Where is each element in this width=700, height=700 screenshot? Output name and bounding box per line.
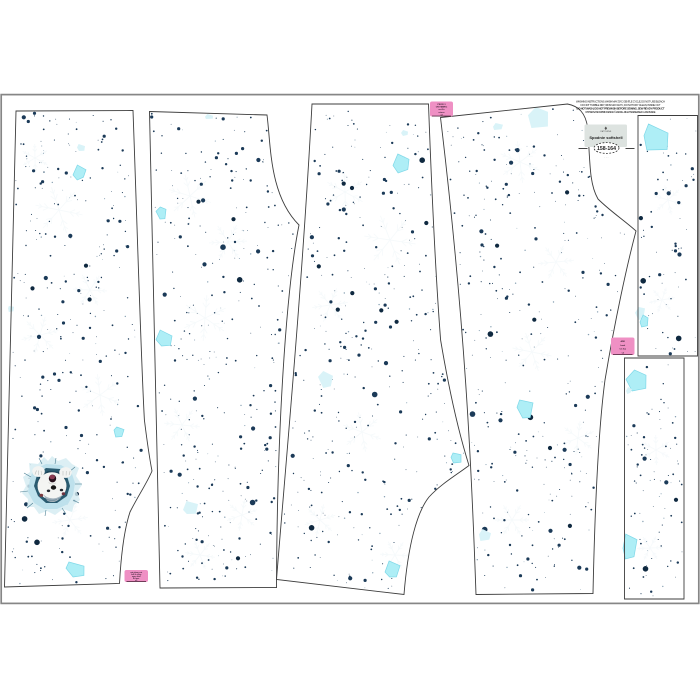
svg-text:158-164: 158-164 [597,146,616,152]
svg-text:back: back [620,345,626,347]
svg-text:cut 2x: cut 2x [438,108,445,111]
svg-text:PATTERN AND FABRIC DESIGN © 20: PATTERN AND FABRIC DESIGN © 2023 ALL RIG… [586,110,656,114]
svg-text:DO NOT WASH, DO NOT PREWASH BE: DO NOT WASH, DO NOT PREWASH BEFORE SEWIN… [577,107,665,111]
svg-text:CC lba: CC lba [620,349,627,351]
svg-text:Spodnie softshell: Spodnie softshell [589,135,622,140]
svg-text:PATTERNS: PATTERNS [601,130,613,133]
svg-text:. . .: . . . [605,155,609,159]
svg-text:ADD: ADD [621,340,626,343]
svg-text:DO NOT TUMBLE DRY, IRON MAX 11: DO NOT TUMBLE DRY, IRON MAX 110°C, DO NO… [581,103,661,107]
svg-text:mirror: mirror [438,111,444,114]
svg-text:WASHING INSTRUCTIONS: WASH MAX: WASHING INSTRUCTIONS: WASH MAX 30°C GENT… [576,100,665,104]
svg-text:x2: x2 [135,580,137,582]
